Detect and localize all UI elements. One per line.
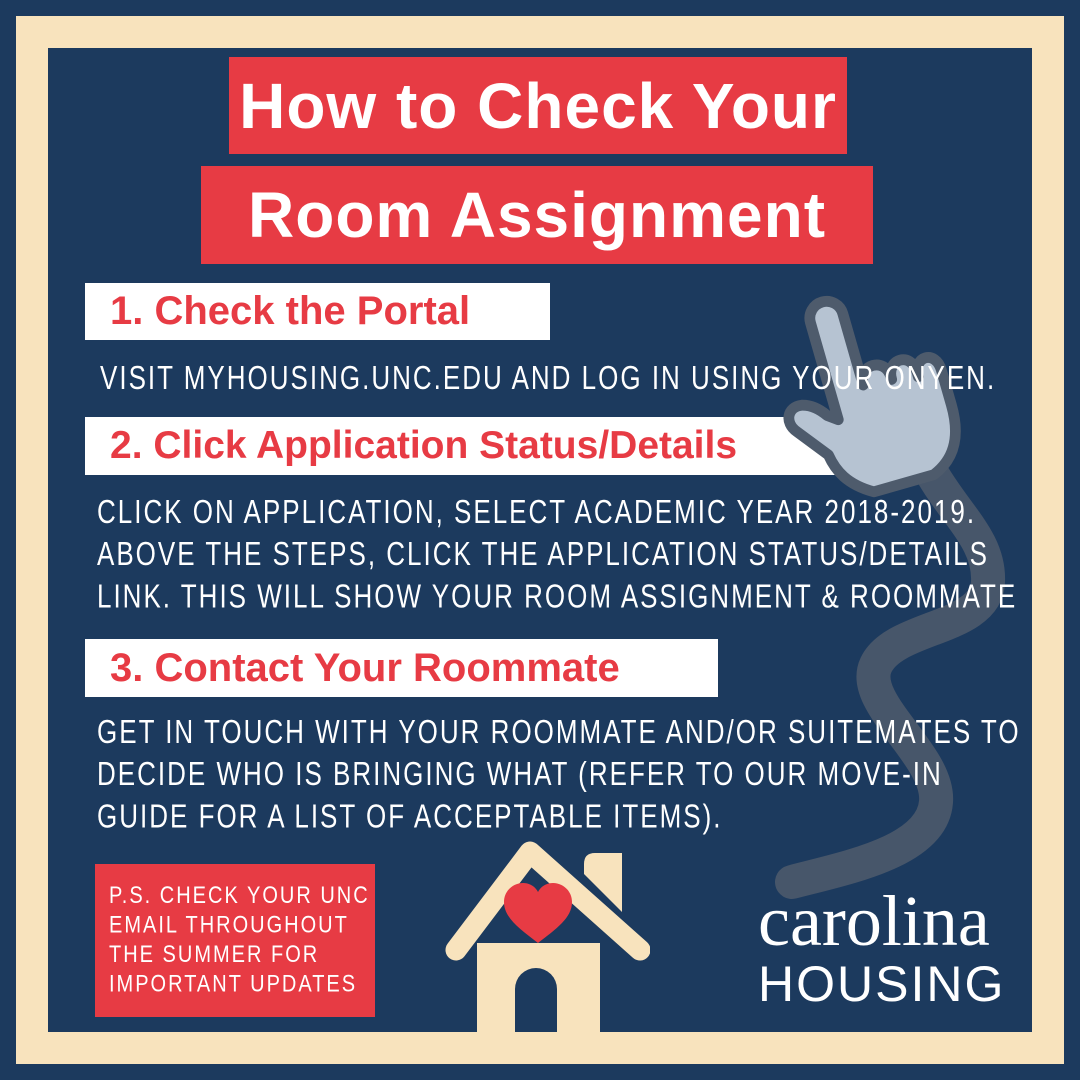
title-text-line1: How to Check Your — [239, 69, 837, 143]
title-banner-line2: Room Assignment — [201, 166, 873, 264]
step1-body: VISIT MYHOUSING.UNC.EDU AND LOG IN USING… — [100, 357, 996, 399]
house-door — [515, 968, 557, 1032]
step3-heading-bar: 3. Contact Your Roommate — [85, 639, 718, 697]
title-banner-line1: How to Check Your — [229, 57, 847, 154]
house-with-heart-icon — [438, 840, 650, 1032]
step2-body: CLICK ON APPLICATION, SELECT ACADEMIC YE… — [97, 491, 1017, 618]
logo-wordmark-housing: HOUSING — [758, 958, 1028, 1010]
heart-icon — [504, 883, 572, 943]
step3-body: GET IN TOUCH WITH YOUR ROOMMATE AND/OR S… — [97, 711, 1021, 838]
ps-note-text: P.S. CHECK YOUR UNC EMAIL THROUGHOUT THE… — [109, 882, 375, 1000]
step3-heading: 3. Contact Your Roommate — [110, 646, 620, 691]
title-text-line2: Room Assignment — [248, 178, 826, 252]
step2-heading: 2. Click Application Status/Details — [110, 424, 737, 468]
carolina-housing-logo: carolina HOUSING — [758, 884, 1028, 1010]
ps-note-box: P.S. CHECK YOUR UNC EMAIL THROUGHOUT THE… — [95, 864, 375, 1017]
step1-heading-bar: 1. Check the Portal — [85, 283, 550, 340]
infographic-poster: How to Check Your Room Assignment 1. Che… — [0, 0, 1080, 1080]
step1-heading: 1. Check the Portal — [110, 289, 470, 334]
